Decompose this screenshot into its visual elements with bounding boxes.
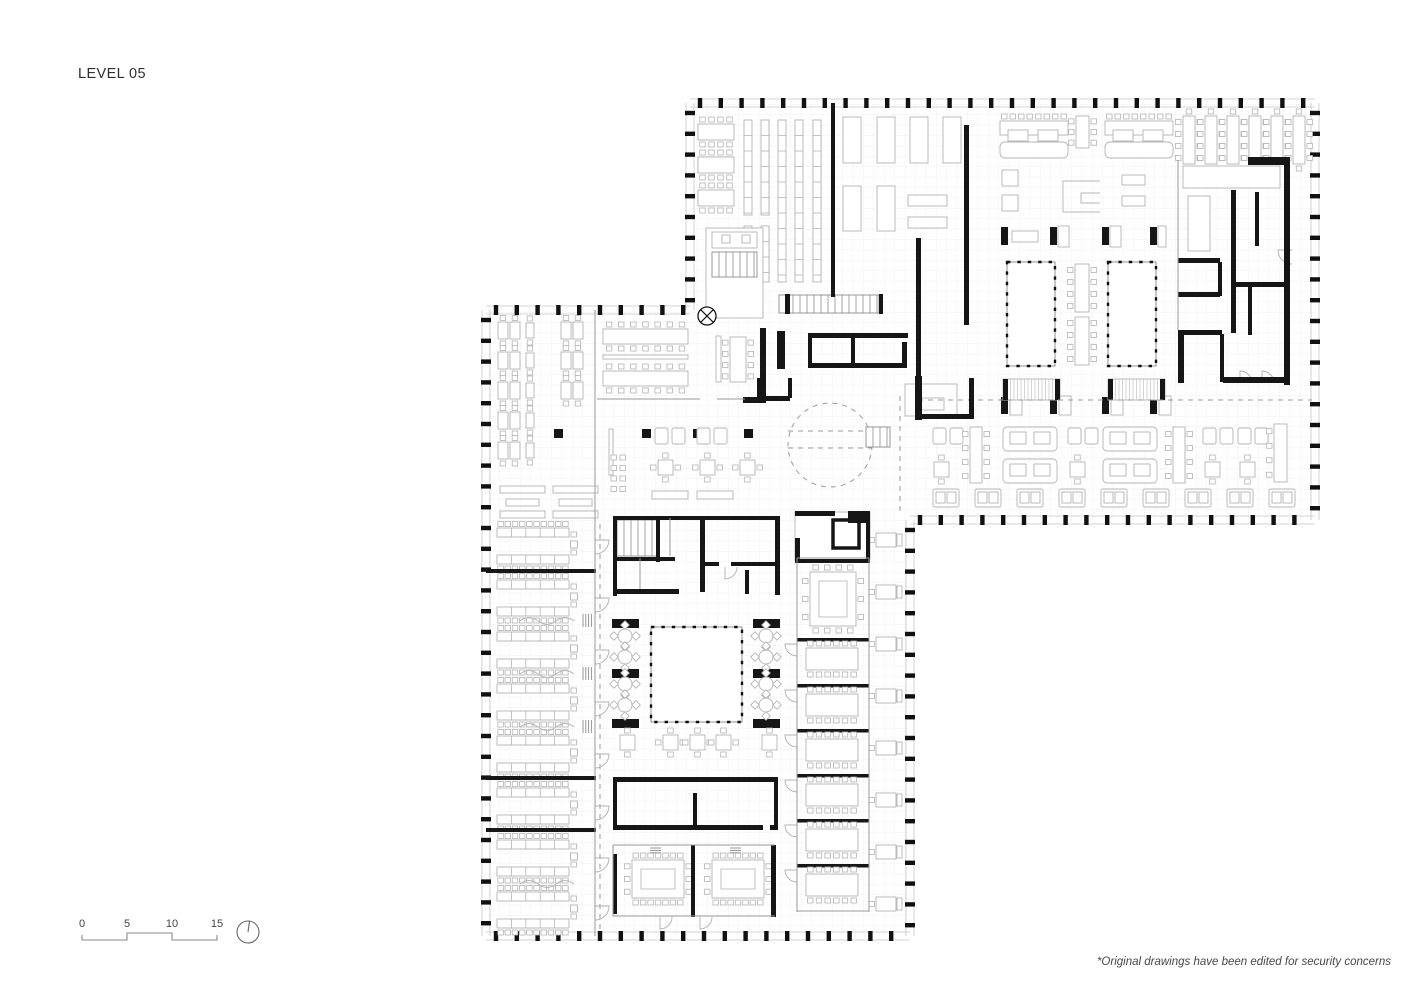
lounge-seat (975, 489, 1001, 507)
column (744, 429, 753, 438)
furniture (1183, 166, 1280, 188)
furniture (1038, 130, 1058, 141)
furniture (1158, 226, 1166, 247)
floor-plan-svg: 0 5 10 15 (0, 0, 1415, 1000)
furniture (1008, 130, 1028, 141)
furniture (877, 186, 895, 231)
bench-planter (1003, 379, 1060, 400)
wall-segment (613, 516, 779, 520)
scale-label-0: 0 (79, 918, 85, 930)
wall-segment (922, 414, 974, 419)
wall-segment (1184, 330, 1222, 335)
study-table (498, 436, 534, 467)
wall-segment (613, 777, 778, 782)
wall-segment (613, 777, 617, 830)
wall-segment (831, 103, 835, 297)
wall-segment (656, 516, 660, 562)
furniture (1110, 226, 1121, 247)
furniture (908, 195, 947, 206)
furniture (908, 217, 947, 228)
shelving (778, 120, 786, 282)
sofa-group (1003, 459, 1057, 483)
wall-segment (1284, 157, 1290, 385)
wall-segment (1178, 330, 1184, 383)
wall-segment (915, 376, 922, 420)
shelving (795, 120, 803, 282)
wall-segment (879, 294, 883, 314)
wall-segment (969, 378, 974, 418)
shaft-symbol (698, 307, 716, 325)
wall-segment (916, 238, 921, 394)
floor-plan-sheet: LEVEL 05 *Original drawings have been ed… (0, 0, 1415, 1000)
wall-segment (613, 854, 617, 914)
wall-segment (1255, 192, 1259, 246)
wall-segment (745, 570, 749, 594)
study-table (498, 346, 534, 377)
wall-segment (703, 562, 719, 566)
wall-segment (775, 516, 780, 595)
wall-segment (700, 516, 705, 592)
north-arrow-icon (237, 921, 259, 943)
wall-segment (1178, 258, 1220, 263)
column (642, 429, 651, 438)
wall-segment (760, 328, 766, 401)
study-table (498, 406, 534, 437)
furniture (1122, 196, 1145, 206)
furniture (877, 117, 895, 163)
wall-segment (691, 845, 695, 917)
furniture (1143, 130, 1163, 141)
wall-segment (731, 562, 779, 566)
wall-segment (1248, 287, 1252, 335)
furniture (553, 486, 598, 493)
wall-segment (808, 363, 907, 368)
scale-label-5: 5 (124, 918, 130, 930)
furniture (943, 117, 961, 163)
table (1069, 116, 1097, 148)
lounge-seat (1143, 489, 1169, 507)
void-opening (1108, 262, 1156, 366)
furniture (1122, 175, 1145, 185)
shelving (744, 120, 752, 215)
furniture (1059, 396, 1071, 415)
furniture (652, 491, 688, 499)
furniture (1188, 196, 1210, 251)
wall-segment (1050, 227, 1057, 245)
stair (712, 252, 757, 277)
wall-segment (777, 331, 785, 369)
furniture (500, 511, 545, 518)
wall-segment (613, 557, 675, 561)
wall-segment (774, 777, 778, 830)
furniture (1002, 170, 1018, 186)
column (554, 429, 563, 438)
furniture (500, 486, 545, 493)
stair (779, 295, 879, 313)
study-table (498, 316, 534, 347)
wall-segment (848, 511, 866, 523)
sofa-group (1103, 459, 1157, 483)
wall-segment (613, 825, 763, 830)
booth-seat (1105, 142, 1173, 158)
lounge-seat (1059, 489, 1085, 507)
conference-table (625, 853, 692, 905)
shelving (813, 120, 821, 282)
scale-label-10: 10 (166, 918, 178, 930)
furniture (742, 235, 750, 243)
booth-seat (1000, 142, 1068, 158)
wall-segment (1150, 227, 1157, 245)
lounge-seat (1101, 489, 1127, 507)
wall-segment (1223, 377, 1288, 383)
furniture (722, 235, 730, 243)
wall-segment (486, 828, 596, 832)
wall-segment (785, 294, 790, 314)
shaft (833, 520, 859, 548)
furniture (559, 499, 592, 506)
furniture (1058, 226, 1069, 247)
wall-segment (964, 125, 969, 325)
lounge-seat (1017, 489, 1043, 507)
furniture (1012, 231, 1038, 242)
furniture (843, 186, 861, 231)
stair (617, 520, 657, 556)
sofa-group (1003, 427, 1057, 451)
wall-segment (693, 793, 697, 830)
furniture (603, 355, 688, 359)
wall-segment (1218, 262, 1222, 296)
scale-bar: 0 5 10 15 (79, 918, 223, 940)
wall-segment (486, 776, 596, 780)
wall-segment (808, 338, 812, 366)
wall-segment (788, 378, 792, 398)
wall-segment (1248, 157, 1288, 165)
bench-planter (1108, 379, 1165, 400)
furniture (910, 117, 928, 163)
wall-segment (1178, 292, 1220, 297)
furniture (1002, 195, 1018, 211)
lounge-seat (1227, 489, 1253, 507)
void-opening (1007, 262, 1055, 366)
wall-segment (1220, 334, 1224, 382)
furniture (697, 491, 733, 499)
lounge-seat (933, 489, 959, 507)
lounge-seat (1185, 489, 1211, 507)
wall-segment (1001, 227, 1008, 245)
conference-table (803, 565, 864, 633)
wall-segment (771, 845, 776, 917)
furniture (716, 336, 721, 382)
furniture (553, 511, 598, 518)
study-table (498, 376, 534, 407)
scale-bar-line (82, 933, 217, 940)
wall-segment (795, 559, 870, 563)
wall-segment (808, 333, 908, 338)
wall-segment (486, 569, 596, 573)
sofa-group (1103, 427, 1157, 451)
wall-segment (613, 516, 617, 596)
atrium-void (651, 627, 742, 722)
wall-segment (1231, 190, 1236, 333)
conference-table (705, 853, 772, 905)
scale-label-15: 15 (211, 918, 223, 930)
wall-segment (1102, 227, 1109, 245)
wall-segment (795, 511, 835, 516)
furniture (506, 499, 539, 506)
wall-segment (866, 511, 870, 563)
lounge-seat (1269, 489, 1295, 507)
wall-segment (613, 589, 679, 594)
shelving (761, 120, 769, 215)
stair (866, 427, 890, 447)
wall-segment (1235, 282, 1288, 287)
furniture (1113, 130, 1133, 141)
wall-segment (851, 338, 855, 366)
furniture (843, 117, 861, 163)
